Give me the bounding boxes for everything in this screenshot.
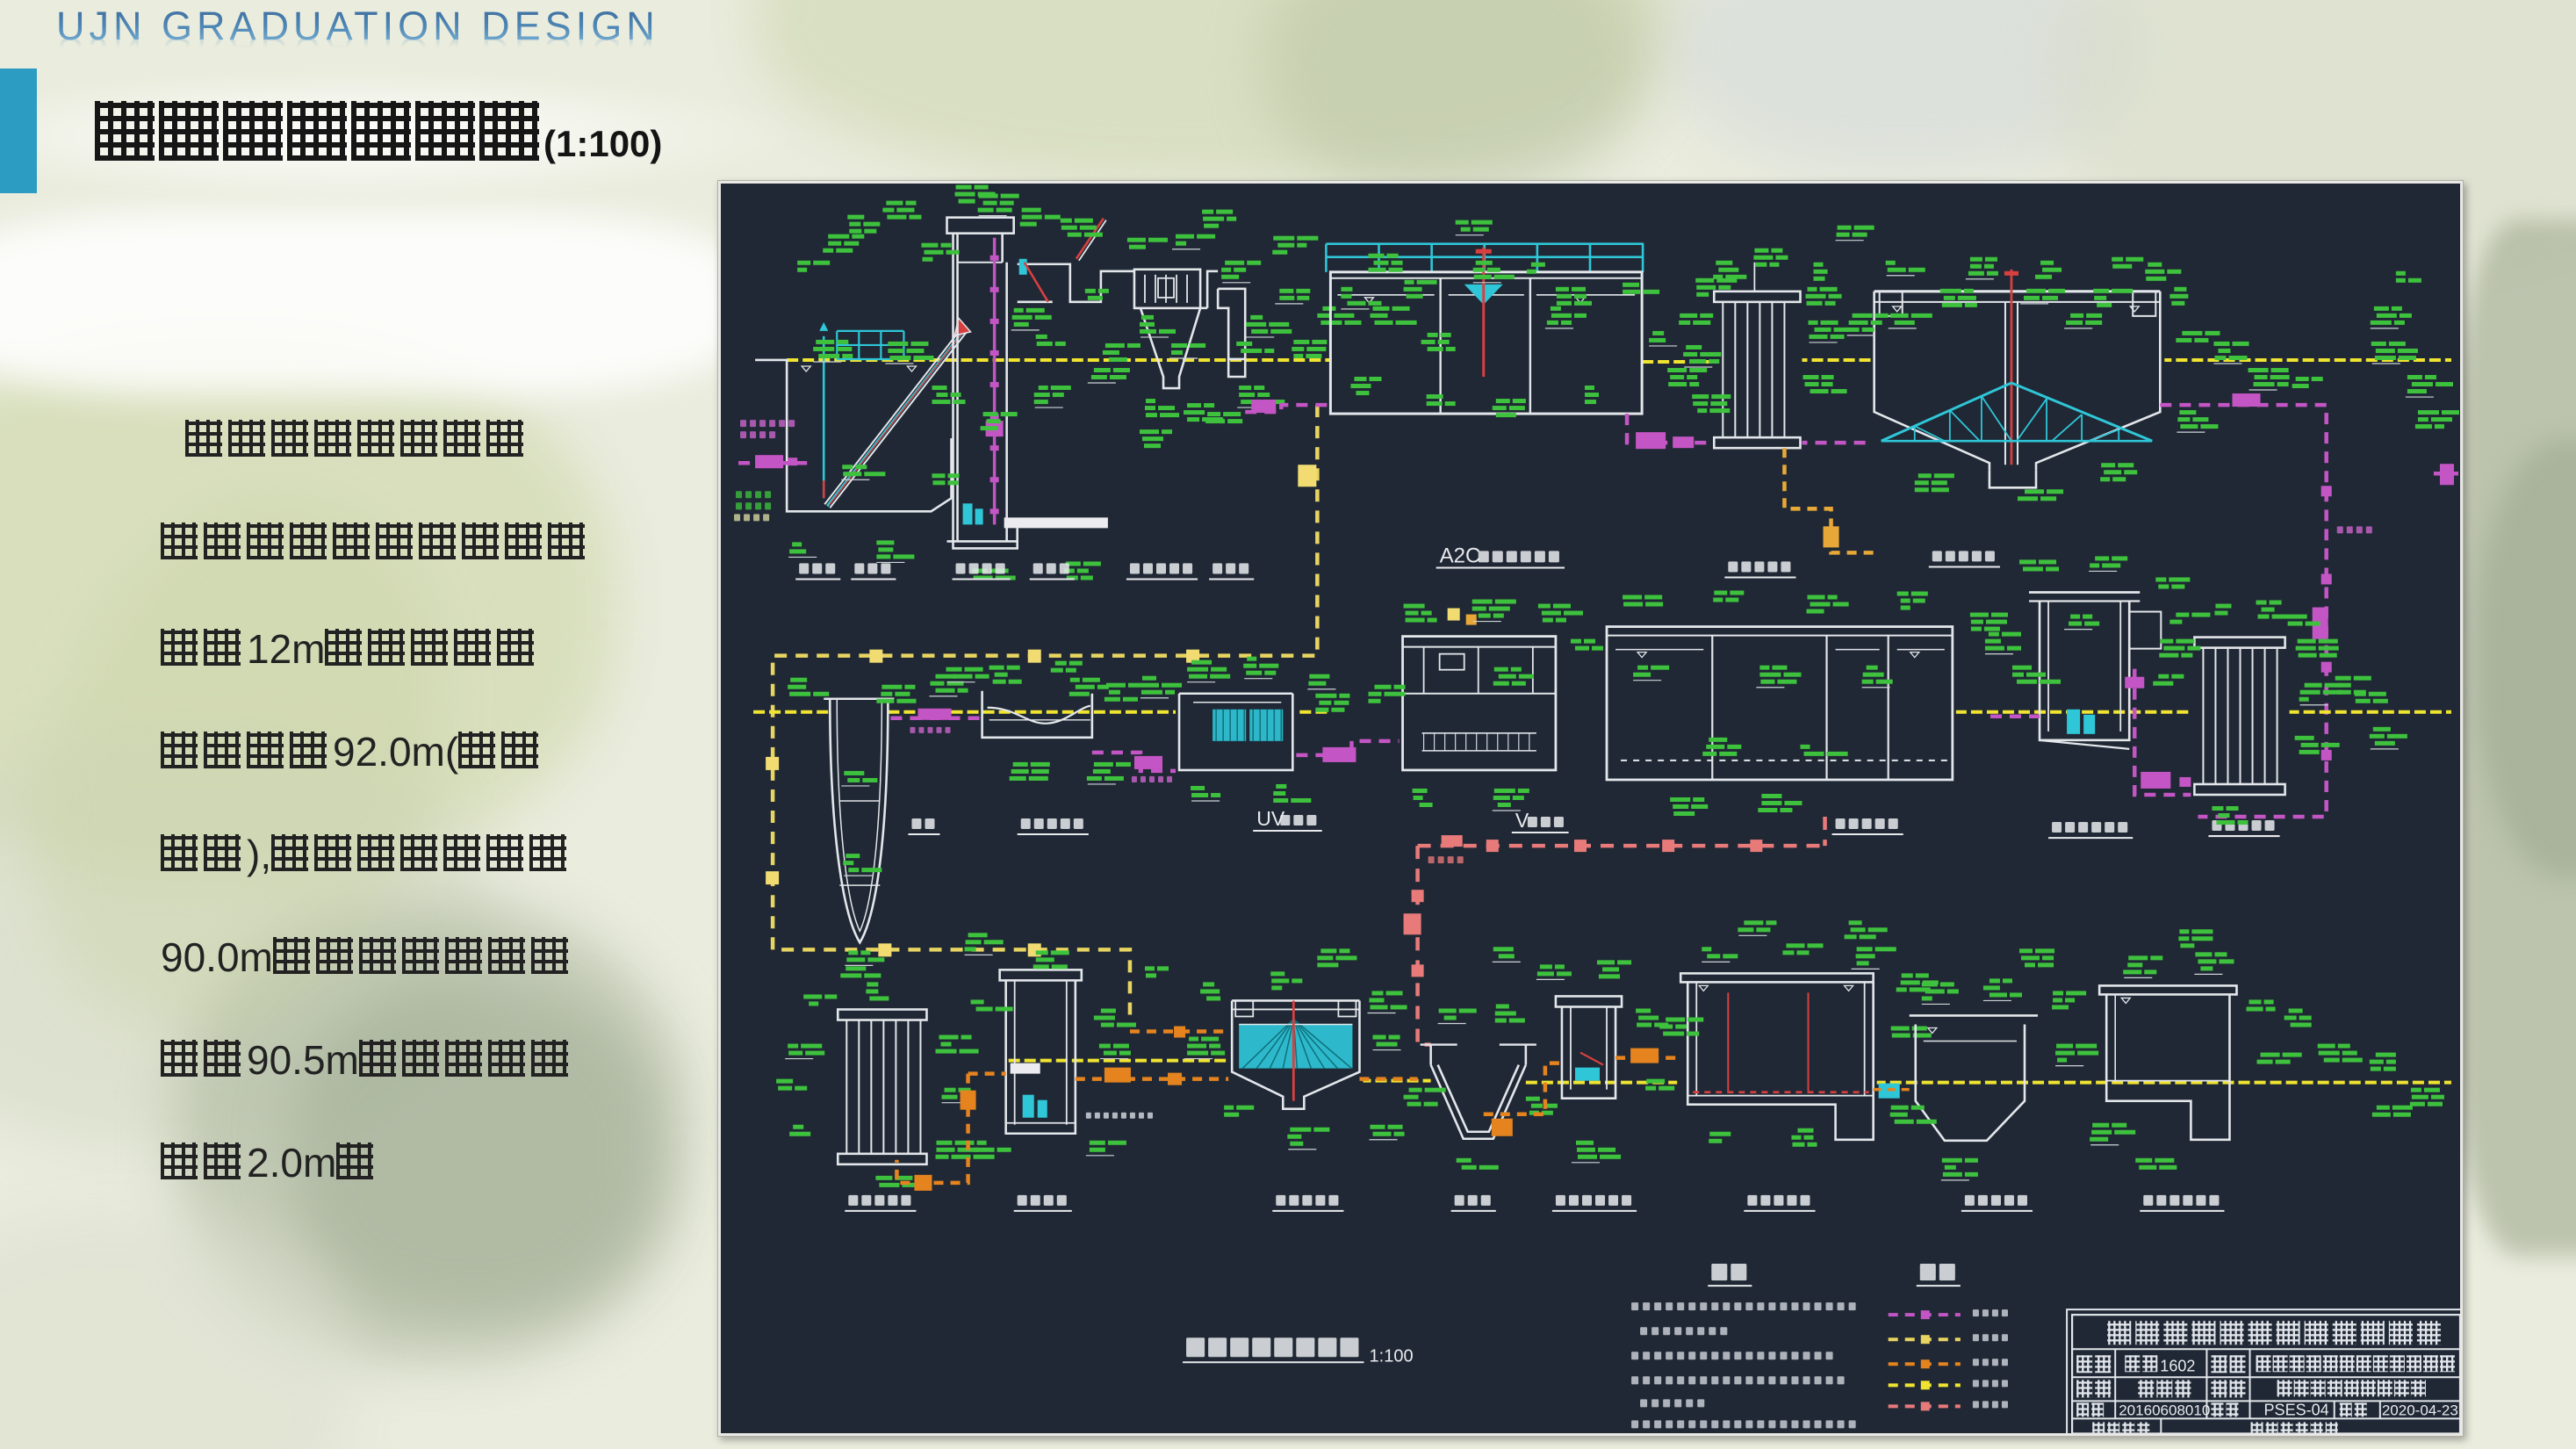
svg-text:PSES-04: PSES-04 [2264,1401,2329,1418]
svg-text:1:100: 1:100 [1369,1346,1413,1366]
svg-text:1602: 1602 [2160,1357,2195,1374]
svg-text:20160608010: 20160608010 [2119,1402,2210,1418]
svg-text:V: V [1515,809,1529,832]
svg-text:2020-04-23: 2020-04-23 [2382,1402,2458,1418]
svg-text:A2C: A2C [1440,544,1481,567]
